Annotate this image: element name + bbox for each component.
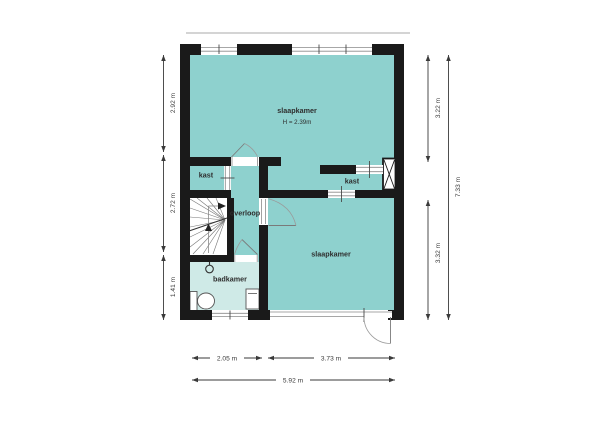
room-label-bedroom-top: slaapkamer xyxy=(277,106,317,115)
toilet-icon xyxy=(190,292,215,311)
wall-bathroom-top xyxy=(180,255,234,262)
window xyxy=(201,45,237,55)
room-label-closet-right: kast xyxy=(345,177,360,186)
wall-bottom xyxy=(248,310,270,320)
wall-top xyxy=(180,44,201,55)
shaft-x-box xyxy=(383,159,396,190)
washbasin-icon xyxy=(246,289,259,309)
wall-stairs-right xyxy=(227,198,234,255)
room-height-note: H = 2.39m xyxy=(283,119,312,126)
room-label-landing: overloop xyxy=(230,209,261,218)
dimension-label-left-middle: 2.72 m xyxy=(170,192,177,213)
door-swing-icon xyxy=(364,318,391,344)
wall-bedroom-divider xyxy=(190,157,231,166)
bathroom-window xyxy=(212,311,248,320)
wall-closet-bottom xyxy=(180,190,231,198)
wall-bottom xyxy=(180,310,212,320)
wall-closet2-bottom xyxy=(268,190,328,198)
room-label-bedroom-bottom: slaapkamer xyxy=(311,250,351,259)
wall-landing-right xyxy=(259,225,268,310)
wall-landing-right xyxy=(259,157,268,198)
dimension-label-bottom-total: 5.92 m xyxy=(283,378,304,385)
balcony-door xyxy=(270,308,392,344)
dimension-label-bottom-left: 2.05 m xyxy=(217,356,238,363)
wall-left xyxy=(180,44,190,320)
dimension-label-left-top: 2.92 m xyxy=(170,92,177,113)
wall-top xyxy=(237,44,292,55)
room-label-bathroom: badkamer xyxy=(213,275,247,284)
floorplan-drawing: 2.92 m 2.72 m 1.41 m 3.22 m 3.32 m 7.33 … xyxy=(0,0,608,430)
wall-closet2-top xyxy=(320,165,356,174)
dimension-label-right-total: 7.33 m xyxy=(455,176,462,197)
dimension-label-left-bottom: 1.41 m xyxy=(170,276,177,297)
dimension-label-right-top: 3.22 m xyxy=(435,97,442,118)
room-label-closet-left: kast xyxy=(199,171,214,180)
window xyxy=(292,45,372,55)
wall-top xyxy=(372,44,404,55)
floorplan-canvas: 2.92 m 2.72 m 1.41 m 3.22 m 3.32 m 7.33 … xyxy=(0,0,608,430)
dimension-label-bottom-right: 3.73 m xyxy=(321,356,342,363)
dimension-label-right-bottom: 3.32 m xyxy=(435,242,442,263)
wall-closet2-bottom xyxy=(355,190,394,198)
